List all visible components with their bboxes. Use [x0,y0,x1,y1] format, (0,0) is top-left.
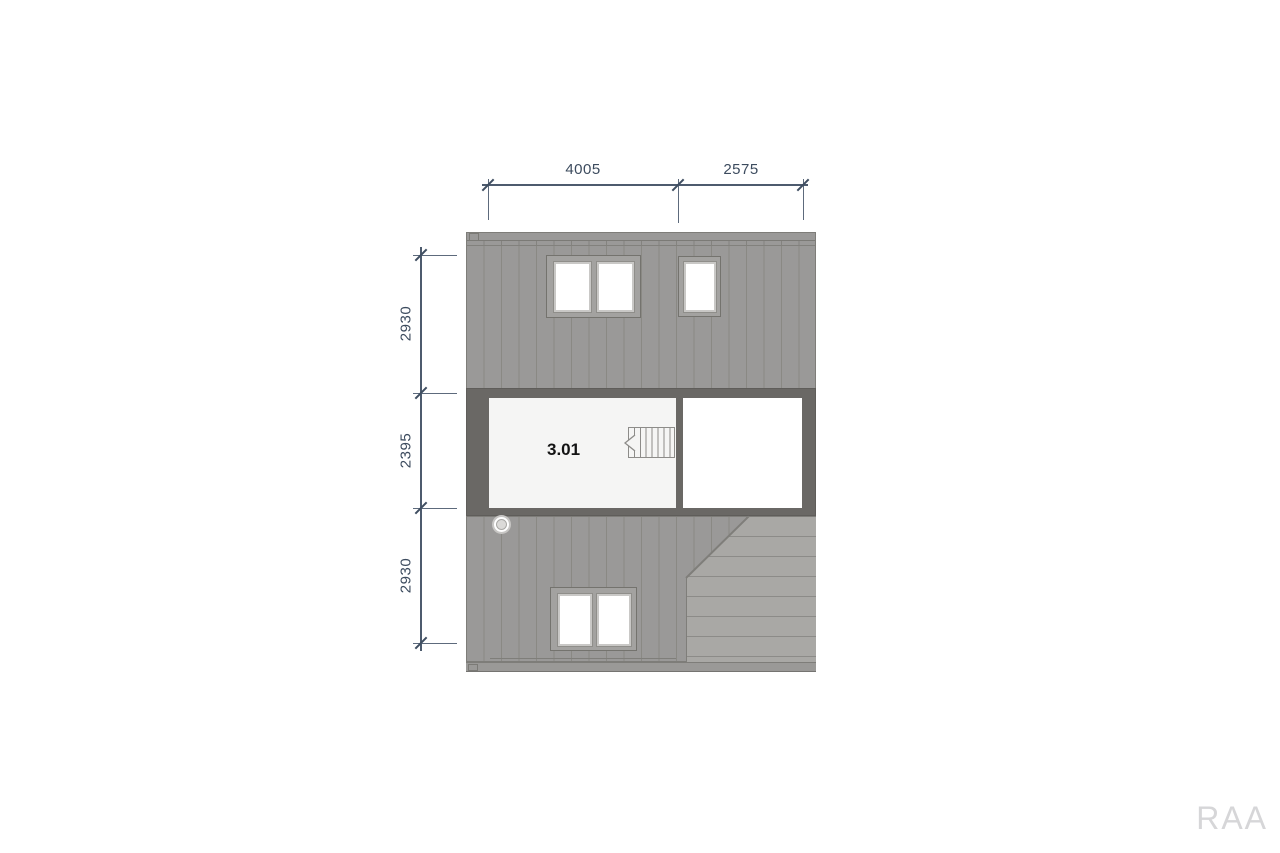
skylight-glass-pane [684,262,716,312]
vent-core [496,519,507,530]
eave-notch [468,664,478,671]
skylight-glass-pane [558,594,592,646]
dimension-label-top-2: 2575 [681,161,801,178]
room-301: 3.01 [489,398,676,508]
skylight-upper-single [678,256,721,317]
room-301-label: 3.01 [547,440,580,460]
vent-circle-icon [492,515,511,534]
watermark: RAA [1196,800,1268,837]
skylight-glass-pane [597,594,631,646]
roof-upper-section [466,232,816,389]
ridge-notch [469,233,479,241]
skylight-glass-pane [554,262,591,312]
deck-left-edge [686,578,687,662]
plan-canvas: 4005 2575 2930 2395 2930 [0,0,1280,853]
eave-band [466,662,816,672]
dimension-label-left-3: 2930 [398,516,415,636]
skylight-lower-double [550,587,637,651]
skylight-upper-double [546,255,641,318]
roof-lower-section [466,516,816,662]
ridge-band [467,233,815,241]
ridge-fascia [467,241,815,246]
dimension-label-left-1: 2930 [398,264,415,384]
eave-guide-line [490,658,676,659]
dimension-line-left [420,247,422,651]
dimension-label-left-2: 2395 [398,391,415,511]
stairs-direction-arrow-icon [623,434,637,452]
skylight-glass-pane [597,262,634,312]
dimension-line-top [482,184,808,186]
dimension-label-top-1: 4005 [523,161,643,178]
room-open-void [683,398,802,508]
roof-plank-pattern [467,246,815,388]
